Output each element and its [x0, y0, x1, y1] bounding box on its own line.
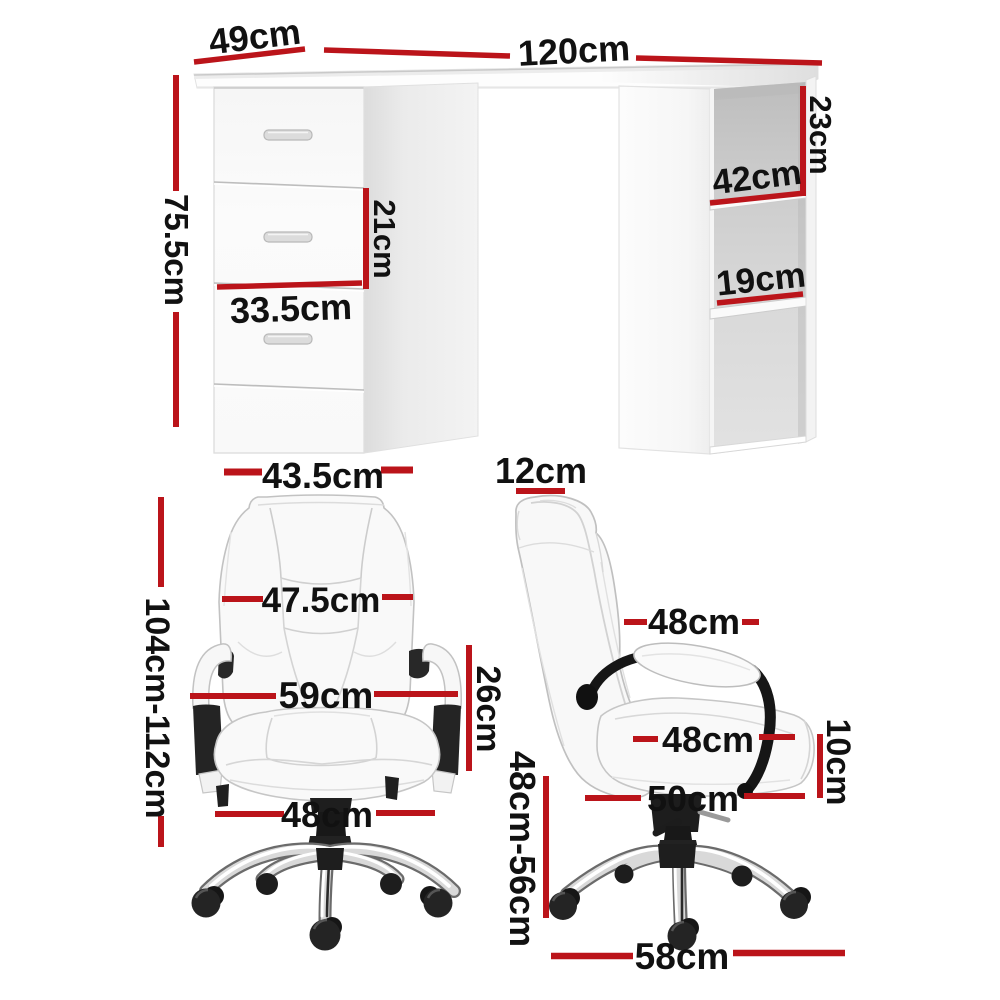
svg-text:49cm: 49cm	[207, 11, 303, 63]
svg-text:48cm: 48cm	[662, 719, 754, 760]
svg-text:48cm: 48cm	[648, 601, 740, 642]
svg-text:75.5cm: 75.5cm	[158, 194, 195, 306]
svg-text:48cm: 48cm	[281, 794, 373, 835]
svg-text:58cm: 58cm	[635, 936, 730, 977]
svg-text:59cm: 59cm	[279, 675, 374, 716]
svg-text:43.5cm: 43.5cm	[262, 455, 384, 496]
svg-text:104cm-112cm: 104cm-112cm	[138, 597, 176, 818]
svg-text:50cm: 50cm	[647, 778, 739, 819]
svg-text:120cm: 120cm	[517, 27, 631, 74]
svg-text:23cm: 23cm	[803, 95, 838, 174]
svg-text:33.5cm: 33.5cm	[229, 286, 352, 331]
svg-text:12cm: 12cm	[495, 450, 587, 491]
svg-text:21cm: 21cm	[367, 199, 402, 278]
svg-text:47.5cm: 47.5cm	[262, 581, 381, 620]
svg-text:10cm: 10cm	[819, 719, 857, 806]
svg-text:48cm-56cm: 48cm-56cm	[502, 751, 543, 947]
svg-text:26cm: 26cm	[469, 666, 507, 753]
